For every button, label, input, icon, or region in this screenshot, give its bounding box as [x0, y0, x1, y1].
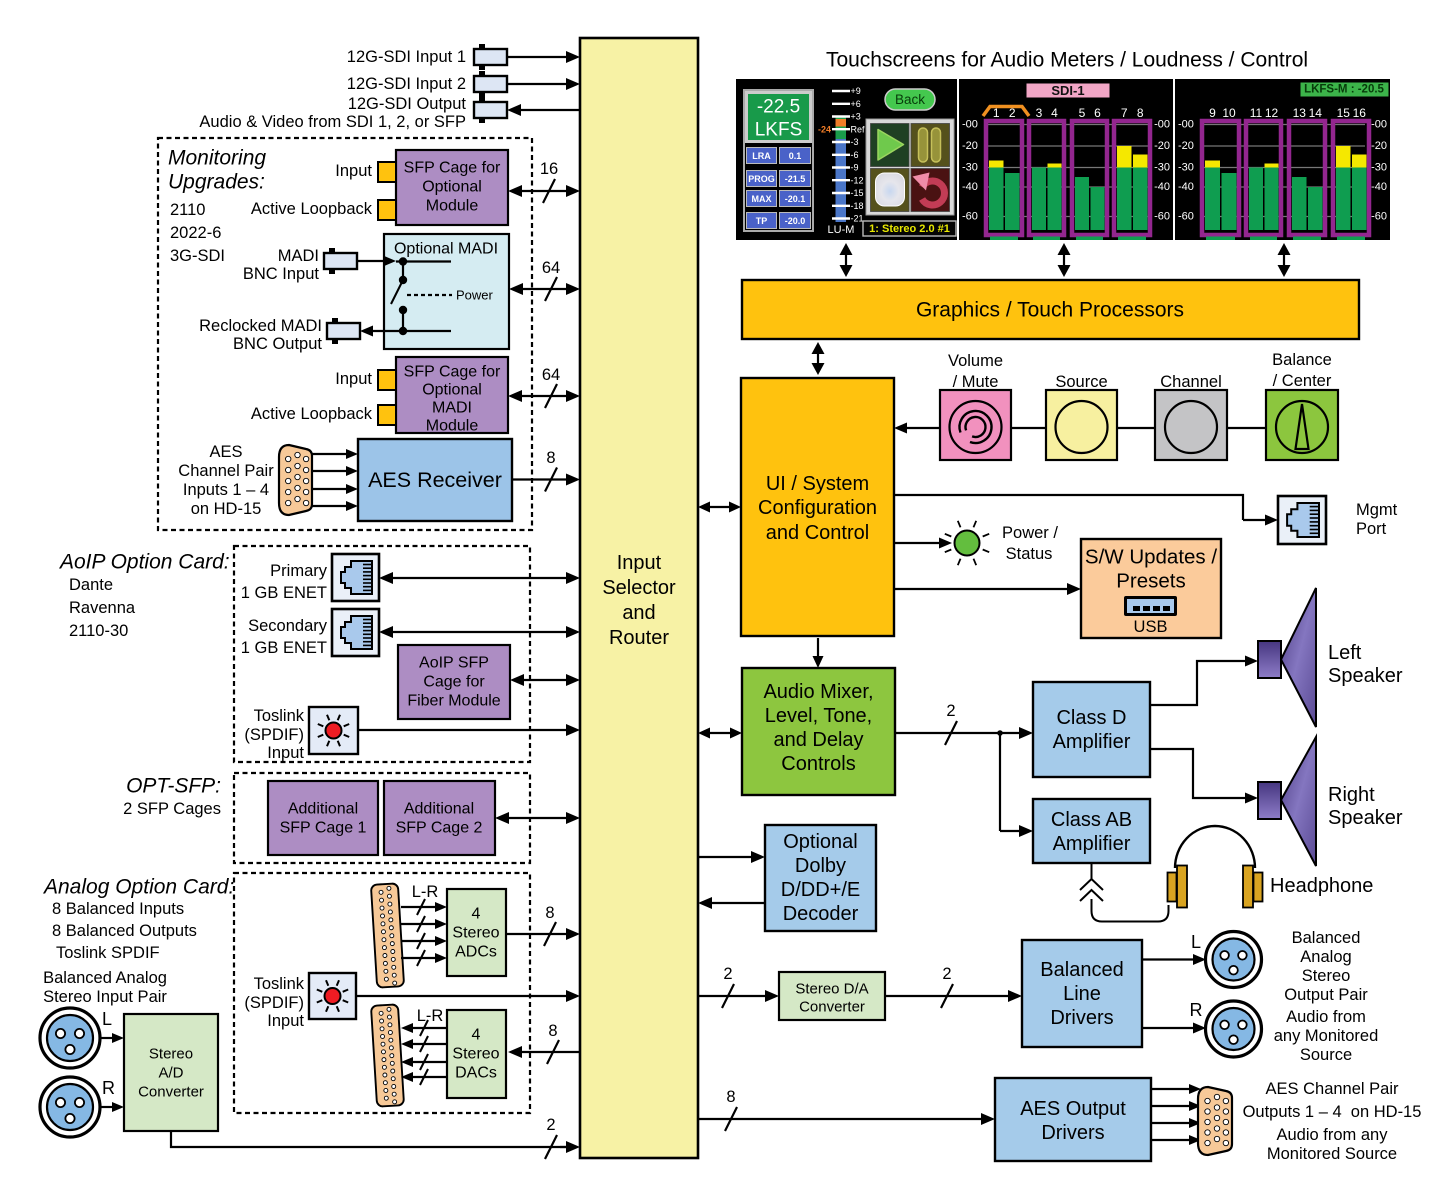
- svg-text:Balanced Analog: Balanced Analog: [43, 969, 167, 987]
- svg-text:Stereo: Stereo: [452, 925, 499, 942]
- svg-text:BNC Input: BNC Input: [243, 265, 320, 283]
- svg-text:any Monitored: any Monitored: [1274, 1027, 1379, 1045]
- svg-text:LRA: LRA: [752, 151, 771, 161]
- svg-text:Stereo: Stereo: [452, 1046, 499, 1063]
- svg-text:-15: -15: [851, 188, 864, 198]
- svg-text:Status: Status: [1006, 545, 1053, 563]
- svg-text:A/D: A/D: [158, 1065, 183, 1082]
- svg-text:2: 2: [942, 965, 951, 983]
- svg-text:OPT-SFP:: OPT-SFP:: [126, 775, 221, 798]
- svg-text:2: 2: [1009, 106, 1016, 120]
- svg-text:8: 8: [548, 1022, 557, 1040]
- svg-text:Port: Port: [1356, 520, 1387, 538]
- svg-text:BNC Output: BNC Output: [233, 335, 322, 353]
- svg-text:12G-SDI Output: 12G-SDI Output: [348, 95, 467, 113]
- svg-text:3G-SDI: 3G-SDI: [170, 247, 225, 265]
- svg-text:Router: Router: [609, 627, 669, 649]
- svg-text:-20: -20: [1371, 140, 1387, 152]
- svg-text:L: L: [1191, 932, 1201, 952]
- svg-text:2110: 2110: [170, 201, 205, 219]
- svg-text:SDI-1: SDI-1: [1051, 83, 1084, 98]
- svg-text:L-R: L-R: [417, 1007, 444, 1025]
- svg-text:2022-6: 2022-6: [170, 224, 221, 242]
- svg-text:Presets: Presets: [1116, 570, 1186, 593]
- svg-text:Audio & Video from SDI 1, 2, o: Audio & Video from SDI 1, 2, or SFP: [199, 113, 466, 131]
- svg-text:/ Center: / Center: [1273, 372, 1332, 390]
- svg-text:Additional: Additional: [288, 801, 358, 818]
- svg-text:LU-M: LU-M: [828, 224, 855, 236]
- svg-text:Channel Pair: Channel Pair: [178, 462, 274, 480]
- svg-text:+6: +6: [851, 99, 861, 109]
- svg-text:Balanced: Balanced: [1292, 929, 1361, 947]
- svg-text:Balance: Balance: [1272, 351, 1332, 369]
- svg-text:Dante: Dante: [69, 576, 113, 594]
- svg-text:UI / System: UI / System: [766, 473, 869, 495]
- svg-text:4: 4: [1051, 106, 1058, 120]
- svg-text:Left: Left: [1328, 642, 1362, 664]
- svg-text:D/DD+/E: D/DD+/E: [781, 879, 860, 901]
- svg-text:2110-30: 2110-30: [69, 622, 128, 640]
- svg-text:Amplifier: Amplifier: [1053, 833, 1131, 855]
- svg-text:SFP Cage 1: SFP Cage 1: [280, 820, 367, 837]
- svg-text:Drivers: Drivers: [1041, 1122, 1104, 1144]
- svg-text:AES Output: AES Output: [1020, 1098, 1126, 1120]
- svg-text:Stereo: Stereo: [149, 1046, 193, 1063]
- svg-text:-40: -40: [962, 181, 978, 193]
- svg-text:12G-SDI Input 2: 12G-SDI Input 2: [347, 75, 466, 93]
- svg-text:MADI: MADI: [278, 247, 319, 265]
- svg-text:1: 1: [993, 106, 1000, 120]
- svg-text:LKFS: LKFS: [755, 120, 803, 141]
- svg-text:8: 8: [545, 904, 554, 922]
- svg-text:7: 7: [1121, 106, 1128, 120]
- svg-text:R: R: [1190, 1000, 1203, 1020]
- svg-text:8 Balanced Outputs: 8 Balanced Outputs: [52, 922, 197, 940]
- svg-text:8: 8: [546, 449, 555, 467]
- svg-text:Audio from: Audio from: [1286, 1008, 1366, 1026]
- svg-text:/ Mute: / Mute: [953, 373, 999, 391]
- svg-text:Dolby: Dolby: [795, 855, 846, 877]
- svg-text:Line: Line: [1063, 983, 1101, 1005]
- svg-text:-20: -20: [962, 140, 978, 152]
- svg-text:8 Balanced Inputs: 8 Balanced Inputs: [52, 900, 184, 918]
- svg-text:-00: -00: [1178, 119, 1194, 131]
- svg-text:Input: Input: [267, 1012, 304, 1030]
- svg-text:2: 2: [723, 965, 732, 983]
- svg-text:L-R: L-R: [412, 883, 439, 901]
- svg-text:+3: +3: [851, 112, 861, 122]
- svg-text:Mgmt: Mgmt: [1356, 501, 1398, 519]
- svg-text:Optional: Optional: [422, 382, 482, 399]
- svg-text:Back: Back: [895, 92, 925, 107]
- svg-text:-40: -40: [1178, 181, 1194, 193]
- svg-text:Output Pair: Output Pair: [1284, 986, 1368, 1004]
- svg-text:-21: -21: [851, 214, 864, 224]
- svg-text:Analog Option Card:: Analog Option Card:: [42, 876, 234, 899]
- svg-text:Toslink SPDIF: Toslink SPDIF: [56, 944, 160, 962]
- svg-text:AES Receiver: AES Receiver: [368, 468, 502, 492]
- svg-text:Active Loopback: Active Loopback: [251, 405, 373, 423]
- svg-text:-6: -6: [851, 150, 859, 160]
- svg-text:2 SFP Cages: 2 SFP Cages: [123, 800, 221, 818]
- svg-text:AoIP Option Card:: AoIP Option Card:: [58, 551, 230, 574]
- svg-text:Ravenna: Ravenna: [69, 599, 136, 617]
- svg-text:L: L: [102, 1009, 112, 1029]
- svg-text:2: 2: [946, 702, 955, 720]
- svg-text:Stereo: Stereo: [1302, 967, 1351, 985]
- svg-text:Ref: Ref: [851, 124, 866, 134]
- svg-text:Audio Mixer,: Audio Mixer,: [763, 681, 873, 703]
- svg-text:Source: Source: [1055, 373, 1107, 391]
- svg-text:Balanced: Balanced: [1040, 959, 1123, 981]
- svg-text:-30: -30: [1371, 162, 1387, 174]
- svg-text:Right: Right: [1328, 784, 1375, 806]
- svg-text:-60: -60: [1154, 211, 1170, 223]
- svg-text:13: 13: [1293, 106, 1307, 120]
- svg-text:-18: -18: [851, 201, 864, 211]
- svg-text:-00: -00: [1371, 119, 1387, 131]
- svg-text:Upgrades:: Upgrades:: [168, 171, 265, 194]
- svg-text:Input: Input: [335, 162, 372, 180]
- svg-text:8: 8: [726, 1088, 735, 1106]
- svg-text:Primary: Primary: [270, 562, 328, 580]
- svg-text:-20: -20: [1178, 140, 1194, 152]
- svg-text:SFP Cage for: SFP Cage for: [404, 364, 501, 381]
- svg-text:Drivers: Drivers: [1050, 1007, 1113, 1029]
- svg-text:Touchscreens for Audio Meters: Touchscreens for Audio Meters / Loudness…: [826, 49, 1308, 72]
- svg-text:-60: -60: [1178, 211, 1194, 223]
- svg-text:Power /: Power /: [1002, 524, 1058, 542]
- svg-text:Converter: Converter: [138, 1084, 204, 1101]
- svg-text:-3: -3: [851, 137, 859, 147]
- svg-text:on HD-15: on HD-15: [191, 500, 262, 518]
- svg-text:4: 4: [472, 906, 481, 923]
- svg-text:Active Loopback: Active Loopback: [251, 200, 373, 218]
- svg-text:Monitoring: Monitoring: [168, 147, 266, 170]
- svg-text:Audio from any: Audio from any: [1277, 1126, 1389, 1144]
- svg-text:Optional: Optional: [422, 179, 482, 196]
- svg-text:Channel: Channel: [1160, 373, 1221, 391]
- svg-text:Speaker: Speaker: [1328, 665, 1403, 687]
- svg-text:AES Channel Pair: AES Channel Pair: [1266, 1080, 1399, 1098]
- svg-text:1 GB ENET: 1 GB ENET: [241, 584, 327, 602]
- svg-text:14: 14: [1309, 106, 1323, 120]
- svg-text:Class D: Class D: [1056, 707, 1126, 729]
- svg-text:SFP Cage 2: SFP Cage 2: [396, 820, 483, 837]
- svg-text:R: R: [102, 1078, 115, 1098]
- svg-text:Speaker: Speaker: [1328, 807, 1403, 829]
- svg-text:Reclocked MADI: Reclocked MADI: [199, 317, 322, 335]
- svg-text:Optional MADI: Optional MADI: [394, 241, 498, 258]
- svg-text:Headphone: Headphone: [1270, 875, 1373, 897]
- svg-text:Stereo Input Pair: Stereo Input Pair: [43, 988, 167, 1006]
- svg-text:Secondary: Secondary: [248, 617, 328, 635]
- svg-text:and: and: [622, 602, 655, 624]
- svg-text:-60: -60: [1371, 211, 1387, 223]
- svg-text:Outputs 1 – 4 on HD-15: Outputs 1 – 4 on HD-15: [1243, 1103, 1422, 1121]
- svg-text:-00: -00: [962, 119, 978, 131]
- svg-text:12: 12: [1265, 106, 1279, 120]
- svg-text:Monitored Source: Monitored Source: [1267, 1145, 1397, 1163]
- svg-text:-40: -40: [1154, 181, 1170, 193]
- svg-text:-60: -60: [962, 211, 978, 223]
- svg-text:S/W Updates /: S/W Updates /: [1085, 546, 1217, 569]
- svg-text:11: 11: [1250, 106, 1263, 120]
- svg-text:3: 3: [1036, 106, 1043, 120]
- svg-text:Module: Module: [426, 198, 479, 215]
- svg-text:Toslink: Toslink: [254, 707, 305, 725]
- svg-text:MADI: MADI: [432, 400, 472, 417]
- svg-text:-9: -9: [851, 163, 859, 173]
- svg-text:-12: -12: [851, 175, 864, 185]
- svg-text:-20: -20: [1154, 140, 1170, 152]
- svg-text:0.1: 0.1: [789, 151, 802, 161]
- svg-text:Source: Source: [1300, 1046, 1352, 1064]
- svg-text:Graphics / Touch Processors: Graphics / Touch Processors: [916, 299, 1184, 322]
- svg-text:(SPDIF): (SPDIF): [244, 994, 304, 1012]
- svg-text:Input: Input: [267, 744, 304, 762]
- svg-text:Stereo D/A: Stereo D/A: [795, 981, 868, 998]
- svg-text:Level, Tone,: Level, Tone,: [765, 705, 873, 727]
- svg-text:(SPDIF): (SPDIF): [244, 726, 304, 744]
- svg-text:6: 6: [1094, 106, 1101, 120]
- svg-text:16: 16: [1353, 106, 1367, 120]
- svg-text:Fiber Module: Fiber Module: [407, 693, 500, 710]
- svg-text:-00: -00: [1154, 119, 1170, 131]
- svg-text:Optional: Optional: [783, 831, 858, 853]
- svg-text:and Control: and Control: [766, 522, 869, 544]
- svg-text:12G-SDI Input 1: 12G-SDI Input 1: [347, 48, 466, 66]
- svg-text:-40: -40: [1371, 181, 1387, 193]
- svg-text:-30: -30: [962, 162, 978, 174]
- svg-text:PROG: PROG: [748, 174, 775, 184]
- svg-text:1 GB ENET: 1 GB ENET: [241, 639, 327, 657]
- svg-text:-30: -30: [1178, 162, 1194, 174]
- svg-text:Selector: Selector: [602, 577, 676, 599]
- svg-text:4: 4: [472, 1027, 481, 1044]
- svg-text:Controls: Controls: [781, 753, 855, 775]
- svg-text:LKFS-M : -20.5: LKFS-M : -20.5: [1304, 84, 1384, 96]
- svg-text:Analog: Analog: [1300, 948, 1351, 966]
- svg-text:Configuration: Configuration: [758, 497, 877, 519]
- svg-text:-20.1: -20.1: [785, 194, 806, 204]
- svg-text:ADCs: ADCs: [455, 944, 497, 961]
- svg-text:Input: Input: [617, 552, 662, 574]
- svg-text:Input: Input: [335, 370, 372, 388]
- svg-text:Inputs 1 – 4: Inputs 1 – 4: [183, 481, 269, 499]
- svg-text:5: 5: [1079, 106, 1086, 120]
- svg-text:1: Stereo 2.0 #1: 1: Stereo 2.0 #1: [869, 223, 950, 235]
- svg-text:Toslink: Toslink: [254, 975, 305, 993]
- svg-text:Power: Power: [456, 288, 494, 303]
- svg-text:Module: Module: [426, 418, 479, 435]
- svg-text:Volume: Volume: [948, 352, 1003, 370]
- svg-text:Decoder: Decoder: [783, 903, 859, 925]
- svg-text:and Delay: and Delay: [773, 729, 863, 751]
- svg-text:MAX: MAX: [752, 194, 772, 204]
- svg-text:64: 64: [542, 366, 560, 384]
- svg-text:Converter: Converter: [799, 999, 865, 1016]
- svg-text:-21.5: -21.5: [785, 174, 806, 184]
- svg-text:AoIP SFP: AoIP SFP: [419, 655, 489, 672]
- svg-text:Amplifier: Amplifier: [1053, 731, 1131, 753]
- svg-text:Additional: Additional: [404, 801, 474, 818]
- svg-text:Cage for: Cage for: [423, 674, 485, 691]
- svg-text:16: 16: [540, 160, 558, 178]
- svg-text:15: 15: [1337, 106, 1351, 120]
- svg-text:Class AB: Class AB: [1051, 809, 1132, 831]
- svg-text:USB: USB: [1134, 618, 1168, 636]
- svg-text:AES: AES: [209, 443, 242, 461]
- svg-text:10: 10: [1222, 106, 1236, 120]
- svg-text:DACs: DACs: [455, 1065, 497, 1082]
- svg-text:2: 2: [546, 1116, 555, 1134]
- svg-text:SFP Cage for: SFP Cage for: [404, 160, 501, 177]
- svg-text:8: 8: [1137, 106, 1144, 120]
- svg-text:-30: -30: [1154, 162, 1170, 174]
- svg-text:-20.0: -20.0: [785, 216, 806, 226]
- svg-text:64: 64: [542, 259, 560, 277]
- svg-text:-24: -24: [818, 125, 831, 135]
- svg-text:+9: +9: [851, 86, 861, 96]
- svg-text:-22.5: -22.5: [757, 97, 800, 118]
- svg-text:9: 9: [1209, 106, 1216, 120]
- svg-text:TP: TP: [756, 216, 768, 226]
